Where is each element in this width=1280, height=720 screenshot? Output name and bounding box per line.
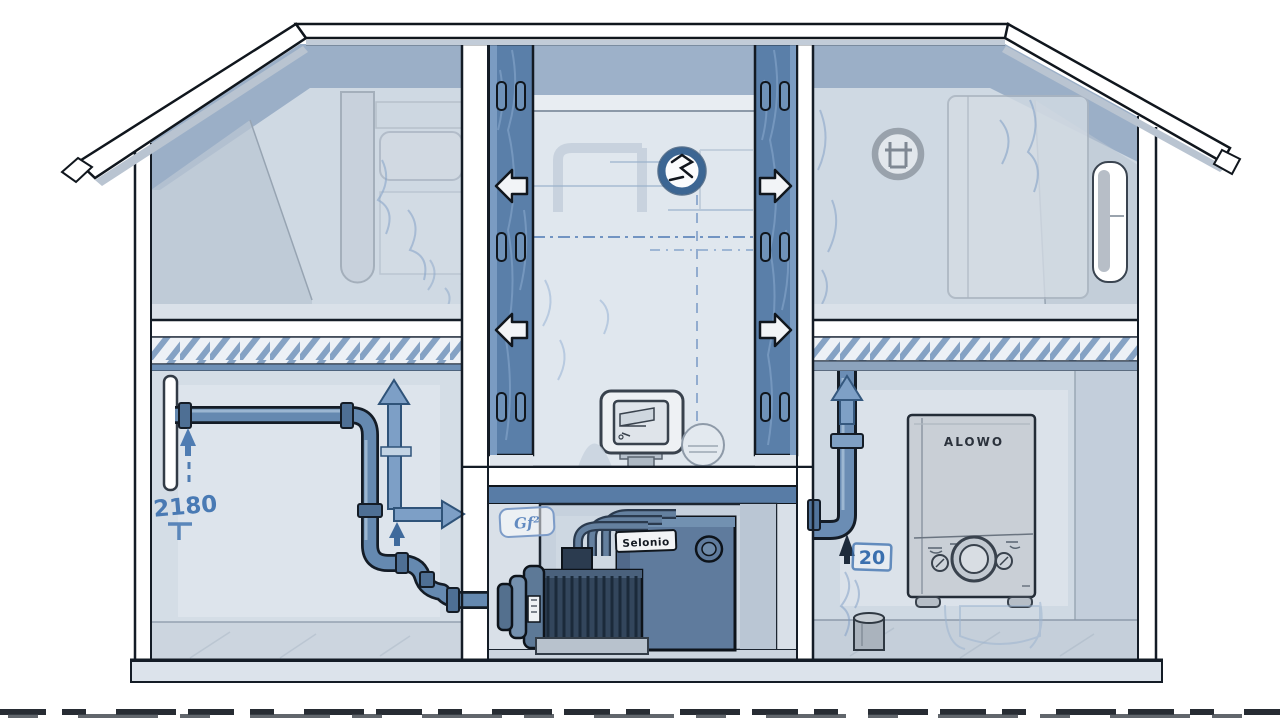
supply-duct-right bbox=[755, 44, 797, 467]
roof-flat-top bbox=[296, 24, 1008, 38]
motor-junction-box bbox=[562, 548, 592, 572]
svg-text:Gf²: Gf² bbox=[514, 513, 541, 532]
floor-canister bbox=[854, 613, 884, 650]
supply-duct-left bbox=[490, 44, 533, 467]
fan-valve-icon bbox=[658, 147, 706, 195]
svg-text:20: 20 bbox=[859, 547, 885, 569]
pump-bay: Gf² Selonio bbox=[462, 467, 813, 660]
ground-line bbox=[0, 712, 1280, 716]
svg-text:2180: 2180 bbox=[152, 491, 218, 522]
scene-svg: 2180 bbox=[0, 0, 1280, 720]
riser-value-label: 20 bbox=[853, 543, 892, 570]
bay-lintel bbox=[488, 486, 797, 504]
wall-door-plate bbox=[1093, 162, 1127, 282]
room-middle-upper bbox=[533, 44, 755, 467]
wall-window-niche bbox=[164, 376, 177, 490]
expansion-tank bbox=[682, 424, 724, 466]
foundation-slab bbox=[131, 661, 1162, 682]
attic-emblem-icon bbox=[875, 131, 921, 177]
house-cutaway-illustration: 2180 bbox=[0, 0, 1280, 720]
room-lower-right: 20 ALOWO bbox=[808, 371, 1138, 660]
ceiling-joist-band-right bbox=[813, 337, 1138, 371]
pump-wall-tag: Gf² bbox=[499, 507, 554, 538]
pump-brand-plate: Selonio bbox=[616, 530, 677, 552]
boiler-brand-label: ALOWO bbox=[944, 435, 1004, 449]
ceiling-joist-band-left bbox=[151, 337, 462, 371]
svg-text:Selonio: Selonio bbox=[622, 536, 670, 550]
pump-pedestal bbox=[536, 638, 648, 654]
